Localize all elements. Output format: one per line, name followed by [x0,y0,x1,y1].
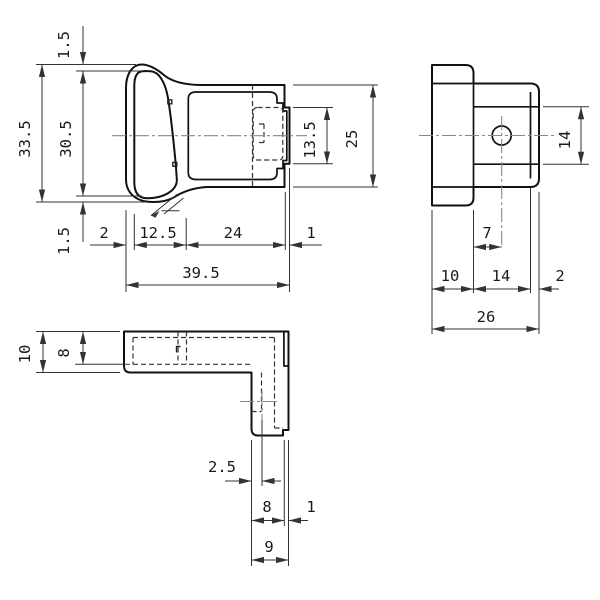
dim-label-height-inner: 30.5 [57,120,75,157]
dim-label-side-seg-mid: 14 [492,267,511,285]
front-extension-lines [36,65,378,293]
bottom-extension-lines [36,332,289,567]
bottom-dimension-labels: 10 8 2.5 8 1 9 [16,345,316,556]
side-dimension-labels: 14 7 10 14 2 26 [441,131,574,326]
bottom-hidden-lines [133,332,283,429]
front-view: 1.5 33.5 30.5 1.5 2 12.5 24 1 39.5 13.5 … [16,26,378,292]
dim-label-depth-outer: 10 [16,345,34,364]
dim-label-seg-body: 24 [224,224,243,242]
dim-label-bar-total: 9 [264,538,273,556]
dim-label-wall-top: 1.5 [55,31,73,59]
bottom-hidden-notch [252,373,262,412]
dim-label-seg-left: 2 [99,224,108,242]
front-rib-mark-top [168,100,172,104]
front-oval-hole [134,71,177,198]
front-hidden-notch [257,124,265,143]
bottom-view: 10 8 2.5 8 1 9 [16,332,316,567]
dim-label-bar-main: 8 [262,498,271,516]
front-outer-profile [126,65,290,203]
front-hidden-pocket [253,108,283,161]
dim-label-bar-lip: 1 [306,498,315,516]
dim-label-band-height: 14 [556,131,574,150]
technical-drawing-canvas: 1.5 33.5 30.5 1.5 2 12.5 24 1 39.5 13.5 … [0,0,600,600]
dim-label-seg-lip: 1 [306,224,315,242]
dim-label-tab-height: 13.5 [301,121,319,158]
dim-label-center-offset: 2.5 [208,458,236,476]
dim-label-seg-oval: 12.5 [139,224,176,242]
dim-label-side-seg-left: 10 [441,267,460,285]
dim-label-width-total: 39.5 [182,264,219,282]
side-view: 14 7 10 14 2 26 [419,65,589,334]
bottom-dimension-lines [43,332,308,561]
dim-label-side-seg-right: 2 [555,267,564,285]
dim-label-depth-inner: 8 [55,348,73,357]
bottom-outer-profile [124,332,289,436]
dim-label-side-width-total: 26 [477,308,496,326]
drawing-svg: 1.5 33.5 30.5 1.5 2 12.5 24 1 39.5 13.5 … [0,0,600,600]
dim-label-height-outer: 33.5 [16,120,34,157]
dim-label-hole-offset: 7 [482,224,491,242]
dim-label-body-height: 25 [343,130,361,149]
dim-label-wall-bottom: 1.5 [55,227,73,255]
